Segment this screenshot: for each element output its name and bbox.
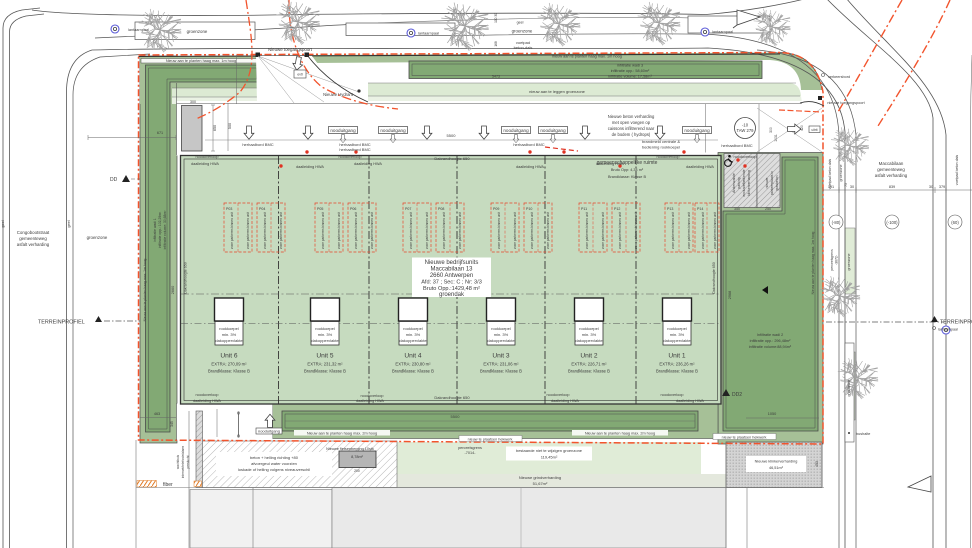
svg-text:Dakrandhoogte 650: Dakrandhoogte 650 xyxy=(712,262,716,294)
svg-text:Brandklasse: Klasse B: Brandklasse: Klasse B xyxy=(568,369,610,374)
svg-text:min. 3%: min. 3% xyxy=(222,332,237,337)
svg-text:350: 350 xyxy=(734,207,740,211)
svg-text:nooduitgang: nooduitgang xyxy=(503,128,529,133)
svg-text:-10: -10 xyxy=(742,123,749,128)
svg-text:Nieuw aan te planten haag max.: Nieuw aan te planten haag max. 1m hoog xyxy=(811,232,815,295)
svg-text:8,78m²: 8,78m² xyxy=(351,455,364,459)
svg-text:P13: P13 xyxy=(667,207,673,211)
svg-text:evtl: evtl xyxy=(297,73,303,77)
svg-text:daalleiding HWA: daalleiding HWA xyxy=(686,165,714,169)
svg-text:Brandklasse: Klasse B: Brandklasse: Klasse B xyxy=(304,369,346,374)
svg-text:51,67m²: 51,67m² xyxy=(533,481,548,486)
svg-text:zone parkeren binnen unit: zone parkeren binnen unit xyxy=(618,212,622,249)
svg-text:Brandklasse: Klasse B: Brandklasse: Klasse B xyxy=(656,369,698,374)
svg-text:zone parkeren binnen unit: zone parkeren binnen unit xyxy=(546,212,550,249)
svg-text:75: 75 xyxy=(844,183,848,187)
svg-text:EXTRA: 270,09 m²: EXTRA: 270,09 m² xyxy=(211,362,247,367)
svg-text:gemeenschappelijke ruimte: gemeenschappelijke ruimte xyxy=(597,160,658,166)
svg-text:nooduitgang: nooduitgang xyxy=(258,429,280,434)
svg-text:Nieuwe grindverharding: Nieuwe grindverharding xyxy=(519,475,561,480)
svg-text:Nieuwe beton verharding: Nieuwe beton verharding xyxy=(608,114,655,119)
svg-text:daalleiding HWA: daalleiding HWA xyxy=(296,165,324,169)
svg-text:Maccabilaan: Maccabilaan xyxy=(879,161,904,166)
svg-text:nieuw aan te planten haag max.: nieuw aan te planten haag max. 1m hoog xyxy=(552,55,622,59)
svg-text:Andersvalide: Andersvalide xyxy=(732,173,736,193)
svg-text:geel: geel xyxy=(67,220,71,227)
svg-text:DD2: DD2 xyxy=(732,392,742,398)
svg-text:wachtbuis: wachtbuis xyxy=(176,455,180,470)
svg-text:Nieuwe Hydrant: Nieuwe Hydrant xyxy=(323,92,354,97)
svg-text:zone parkeren binnen unit: zone parkeren binnen unit xyxy=(279,212,283,249)
svg-text:DD: DD xyxy=(110,177,118,183)
svg-text:Congobootstraat: Congobootstraat xyxy=(17,230,50,235)
svg-text:Unit 5: Unit 5 xyxy=(316,353,334,360)
svg-text:rookkoepel: rookkoepel xyxy=(219,326,239,331)
svg-text:(-100): (-100) xyxy=(886,220,898,225)
svg-text:Nieuw aan te planten haag max.: Nieuw aan te planten haag max. 2m hoog xyxy=(307,431,377,435)
svg-text:-3672-: -3672- xyxy=(835,255,839,265)
svg-text:-7014-: -7014- xyxy=(465,451,477,455)
svg-text:P05: P05 xyxy=(317,207,323,211)
svg-text:groendak: groendak xyxy=(439,292,465,298)
svg-text:300: 300 xyxy=(769,127,773,133)
svg-text:min. 3%: min. 3% xyxy=(406,332,421,337)
svg-text:(-80): (-80) xyxy=(832,220,841,225)
svg-text:asfalt verharding: asfalt verharding xyxy=(875,173,908,178)
svg-text:dakoppervlakte: dakoppervlakte xyxy=(399,338,427,343)
svg-text:noodoverloop: noodoverloop xyxy=(195,393,218,397)
svg-text:noodoverloop: noodoverloop xyxy=(656,155,679,159)
svg-text:fiber: fiber xyxy=(163,482,173,488)
svg-text:daalleiding HWA: daalleiding HWA xyxy=(193,399,221,403)
svg-text:TERREINPROFIEL: TERREINPROFIEL xyxy=(38,320,85,326)
svg-text:grasbeton: grasbeton xyxy=(775,175,779,190)
svg-text:463: 463 xyxy=(154,412,160,416)
svg-text:caissons infiltrerend naar: caissons infiltrerend naar xyxy=(608,126,655,131)
svg-text:daalleiding HWA: daalleiding HWA xyxy=(676,399,704,403)
svg-text:5500: 5500 xyxy=(451,414,461,419)
svg-text:lantaarnpaal: lantaarnpaal xyxy=(938,328,958,332)
svg-text:30: 30 xyxy=(929,185,933,189)
svg-text:500: 500 xyxy=(228,123,232,129)
svg-text:lantaarnpaal: lantaarnpaal xyxy=(418,32,439,36)
svg-text:zone parkeren binnen unit: zone parkeren binnen unit xyxy=(634,212,638,249)
svg-text:zone parkeren binnen unit: zone parkeren binnen unit xyxy=(321,212,325,249)
svg-text:2660 Antwerpen: 2660 Antwerpen xyxy=(430,273,473,279)
svg-text:EXTRA: 231,32 m²: EXTRA: 231,32 m² xyxy=(307,362,343,367)
svg-text:Unit 1: Unit 1 xyxy=(668,353,686,360)
svg-text:379: 379 xyxy=(939,185,945,189)
svg-text:zone parkeren binnen unit: zone parkeren binnen unit xyxy=(370,212,374,249)
svg-text:P06: P06 xyxy=(350,207,356,211)
svg-text:brandmeld centrale &: brandmeld centrale & xyxy=(642,139,680,144)
svg-text:Dakrandhoogte 650: Dakrandhoogte 650 xyxy=(434,395,470,400)
svg-text:TERREINPROFIEL: TERREINPROFIEL xyxy=(940,320,972,326)
svg-text:herhaalbord BMC: herhaalbord BMC xyxy=(721,143,752,148)
svg-text:daalleiding HWA: daalleiding HWA xyxy=(354,162,382,166)
svg-text:2660: 2660 xyxy=(171,286,175,294)
svg-text:Unit 3: Unit 3 xyxy=(492,353,510,360)
svg-text:klinkerverharding: klinkerverharding xyxy=(747,170,751,196)
svg-text:noodoverloop: noodoverloop xyxy=(195,155,218,159)
svg-text:nooduitgang: nooduitgang xyxy=(540,128,566,133)
svg-text:Afd: 37 ; Sec: C ; Nr: 3/3: Afd: 37 ; Sec: C ; Nr: 3/3 xyxy=(421,280,482,286)
svg-text:bestaande niet te wijzigen gro: bestaande niet te wijzigen groenzone xyxy=(516,448,583,453)
svg-text:geel: geel xyxy=(1,220,5,227)
svg-text:beton-dals: beton-dals xyxy=(514,45,533,50)
svg-text:nieuwe toegangspoort: nieuwe toegangspoort xyxy=(827,101,865,105)
svg-text:nieuw te plaatsen hekwerk: nieuw te plaatsen hekwerk xyxy=(722,435,767,439)
svg-text:perceelsgrens: perceelsgrens xyxy=(458,446,482,450)
svg-text:Unit 6: Unit 6 xyxy=(220,353,238,360)
svg-text:min. 3%: min. 3% xyxy=(670,332,685,337)
svg-text:zone parkeren binnen unit: zone parkeren binnen unit xyxy=(671,212,675,249)
svg-text:min. 3%: min. 3% xyxy=(318,332,333,337)
svg-text:infiltratie opp.: 296,48m²: infiltratie opp.: 296,48m² xyxy=(750,339,791,343)
svg-text:herhaalbord BMC: herhaalbord BMC xyxy=(242,142,273,147)
svg-text:zone parkeren binnen unit: zone parkeren binnen unit xyxy=(230,212,234,249)
svg-text:Infiltratie wadi 2: Infiltratie wadi 2 xyxy=(757,333,783,337)
svg-text:119,45m²: 119,45m² xyxy=(541,455,558,460)
svg-text:46,51m²: 46,51m² xyxy=(769,466,784,470)
svg-text:Nieuwe toegangspoort: Nieuwe toegangspoort xyxy=(268,47,313,52)
svg-text:P12: P12 xyxy=(614,207,620,211)
svg-text:zone parkeren binnen unit: zone parkeren binnen unit xyxy=(601,212,605,249)
svg-text:100 30: 100 30 xyxy=(494,13,498,23)
svg-text:daalleiding HWA: daalleiding HWA xyxy=(356,399,384,403)
svg-text:dakoppervlakte: dakoppervlakte xyxy=(487,338,515,343)
svg-text:nieuw te plaatsen hekwerk: nieuw te plaatsen hekwerk xyxy=(468,437,513,441)
svg-text:verkeersbord: verkeersbord xyxy=(828,75,850,79)
svg-text:voetpad beton dals: voetpad beton dals xyxy=(955,155,959,186)
svg-text:Dakrandhoogte 650: Dakrandhoogte 650 xyxy=(434,156,470,161)
svg-text:infiltratie wadi 1: infiltratie wadi 1 xyxy=(153,218,157,241)
svg-text:5473: 5473 xyxy=(492,75,500,79)
svg-text:EXTRA: 236,26 m²: EXTRA: 236,26 m² xyxy=(659,362,695,367)
svg-text:rookkoepel: rookkoepel xyxy=(667,326,687,331)
svg-text:200: 200 xyxy=(354,469,360,473)
svg-text:300: 300 xyxy=(190,100,196,104)
svg-text:Dakrandhoogte 650: Dakrandhoogte 650 xyxy=(184,262,188,294)
svg-text:Brandklasse: Klasse B: Brandklasse: Klasse B xyxy=(208,369,250,374)
svg-text:EXTRA: 231,06 m²: EXTRA: 231,06 m² xyxy=(483,362,519,367)
svg-text:min. 3%: min. 3% xyxy=(494,332,509,337)
svg-text:EXTRA: 230,80 m²: EXTRA: 230,80 m² xyxy=(395,362,431,367)
svg-text:zone parkeren binnen unit: zone parkeren binnen unit xyxy=(354,212,358,249)
svg-text:zone parkeren binnen unit: zone parkeren binnen unit xyxy=(585,212,589,249)
svg-text:nooduitgang: nooduitgang xyxy=(380,128,406,133)
svg-text:lantaarnpaal: lantaarnpaal xyxy=(128,28,149,32)
svg-text:groenzone: groenzone xyxy=(847,380,851,397)
svg-text:Unit 4: Unit 4 xyxy=(404,353,422,360)
svg-text:P04: P04 xyxy=(259,207,265,211)
svg-text:daalleiding HWA: daalleiding HWA xyxy=(551,399,579,403)
svg-text:nieuwe: nieuwe xyxy=(765,178,769,189)
svg-text:herhaalbord BMC: herhaalbord BMC xyxy=(513,142,544,147)
svg-text:zone parkeren binnen unit: zone parkeren binnen unit xyxy=(513,212,517,249)
svg-text:Nieuw aan te planten haag max.: Nieuw aan te planten haag max. 1m hoog xyxy=(166,59,236,63)
svg-text:parking: parking xyxy=(737,177,741,188)
svg-text:internet/telefonie/alarm: internet/telefonie/alarm xyxy=(181,445,185,478)
svg-text:geel: geel xyxy=(517,21,524,25)
svg-text:zone parkeren binnen unit: zone parkeren binnen unit xyxy=(530,212,534,249)
svg-text:groenzone: groenzone xyxy=(847,254,851,271)
svg-text:dakoppervlakte: dakoppervlakte xyxy=(575,338,603,343)
svg-text:daalleiding HWA: daalleiding HWA xyxy=(516,165,544,169)
svg-text:daalleiding HWA: daalleiding HWA xyxy=(191,162,219,166)
svg-text:bediening rookkoepel: bediening rookkoepel xyxy=(642,145,680,150)
svg-text:infiltratie volume: 17,58m³: infiltratie volume: 17,58m³ xyxy=(608,75,652,79)
svg-text:Nieuw aan te planten haag max.: Nieuw aan te planten haag max. 1m hoog xyxy=(143,259,147,322)
svg-text:dakoppervlakte: dakoppervlakte xyxy=(215,338,243,343)
svg-text:de bodem ( hydrops): de bodem ( hydrops) xyxy=(612,132,651,137)
svg-text:zone parkeren binnen unit: zone parkeren binnen unit xyxy=(687,212,691,249)
svg-text:groenzone: groenzone xyxy=(87,235,108,240)
svg-text:zone parkeren binnen unit: zone parkeren binnen unit xyxy=(425,212,429,249)
svg-text:loskade of helling volgens niv: loskade of helling volgens niveauverschi… xyxy=(238,467,310,472)
svg-text:noodoverloop: noodoverloop xyxy=(338,155,361,159)
svg-text:infiltratie wadi 3: infiltratie wadi 3 xyxy=(617,64,643,68)
svg-text:TAW 279: TAW 279 xyxy=(737,128,755,133)
svg-text:gemeenteweg: gemeenteweg xyxy=(19,236,47,241)
svg-text:Brandklasse: Klasse B: Brandklasse: Klasse B xyxy=(608,175,646,179)
svg-text:beton + helling richting +80: beton + helling richting +80 xyxy=(250,455,299,460)
svg-text:rookkoepel: rookkoepel xyxy=(315,326,335,331)
svg-text:nooduitgang: nooduitgang xyxy=(330,128,356,133)
svg-text:(60): (60) xyxy=(951,220,959,225)
svg-text:zone parkeren binnen unit: zone parkeren binnen unit xyxy=(263,212,267,249)
svg-text:infiltratie volume:88,94m³: infiltratie volume:88,94m³ xyxy=(749,345,792,349)
svg-text:345: 345 xyxy=(170,421,174,427)
svg-text:168: 168 xyxy=(494,41,498,47)
svg-text:839: 839 xyxy=(889,185,895,189)
svg-text:zone parkeren binnen unit: zone parkeren binnen unit xyxy=(701,212,705,249)
svg-text:671: 671 xyxy=(157,131,163,135)
svg-text:P07: P07 xyxy=(405,207,411,211)
svg-text:zone parkeren binnen unit: zone parkeren binnen unit xyxy=(442,212,446,249)
svg-text:Bruto Opp: 4,34 m²: Bruto Opp: 4,34 m² xyxy=(611,168,644,172)
svg-text:250: 250 xyxy=(765,207,771,211)
svg-text:noodoverloop: noodoverloop xyxy=(733,155,756,159)
svg-text:noodoverloop: noodoverloop xyxy=(546,393,569,397)
svg-text:noodoverloop: noodoverloop xyxy=(660,393,683,397)
svg-text:420: 420 xyxy=(800,125,804,131)
svg-text:exclusiefbediende: exclusiefbediende xyxy=(742,169,746,196)
svg-text:groenzone: groenzone xyxy=(512,29,533,34)
svg-text:infiltratie opp.: 58,60m²: infiltratie opp.: 58,60m² xyxy=(611,69,650,73)
svg-text:zone parkeren binnen unit: zone parkeren binnen unit xyxy=(713,212,717,249)
svg-text:afvoergeul water voorzien: afvoergeul water voorzien xyxy=(251,461,297,466)
svg-text:30: 30 xyxy=(850,185,854,189)
svg-text:herhaalbord BMC: herhaalbord BMC xyxy=(339,147,370,152)
svg-text:noodoverloop: noodoverloop xyxy=(360,394,383,398)
svg-text:P10: P10 xyxy=(526,207,532,211)
svg-text:dakoppervlakte: dakoppervlakte xyxy=(311,338,339,343)
svg-text:nooduitgang: nooduitgang xyxy=(684,128,710,133)
svg-text:EXTRA: 226,71 m²: EXTRA: 226,71 m² xyxy=(571,362,607,367)
svg-text:5500: 5500 xyxy=(447,133,457,138)
svg-text:min. 3%: min. 3% xyxy=(582,332,597,337)
svg-text:P03: P03 xyxy=(226,207,232,211)
svg-text:Unit 2: Unit 2 xyxy=(580,353,598,360)
svg-text:Nieuwe klinkerverharding: Nieuwe klinkerverharding xyxy=(755,460,798,464)
svg-text:dakoppervlakte: dakoppervlakte xyxy=(663,338,691,343)
svg-text:zone parkeren binnen unit: zone parkeren binnen unit xyxy=(246,212,250,249)
svg-text:1031: 1031 xyxy=(774,134,778,142)
svg-text:infiltratie volume: 30,68m³: infiltratie volume: 30,68m³ xyxy=(163,210,167,250)
svg-text:P09: P09 xyxy=(493,207,499,211)
svg-text:infiltratie opp.: 102,29m²: infiltratie opp.: 102,29m² xyxy=(158,211,162,248)
svg-text:Brandklasse: Klasse B: Brandklasse: Klasse B xyxy=(392,369,434,374)
svg-text:nieuw aan te leggen groenzone: nieuw aan te leggen groenzone xyxy=(529,89,586,94)
svg-text:Maccabilaan 13: Maccabilaan 13 xyxy=(430,267,473,273)
svg-text:perslucht: perslucht xyxy=(186,455,190,468)
svg-text:Nieuw aan te planten haag max.: Nieuw aan te planten haag max. 2m hoog xyxy=(585,431,655,435)
svg-text:P14: P14 xyxy=(697,207,703,211)
svg-text:rookkoepel: rookkoepel xyxy=(403,326,423,331)
svg-text:bushalte: bushalte xyxy=(856,432,870,436)
svg-text:gemeenteweg: gemeenteweg xyxy=(877,167,905,172)
svg-text:zone parkeren binnen unit: zone parkeren binnen unit xyxy=(497,212,501,249)
svg-text:P11: P11 xyxy=(581,207,587,211)
svg-text:1050: 1050 xyxy=(768,412,776,416)
svg-text:groenzone: groenzone xyxy=(839,165,843,182)
svg-text:perceelsgrens: perceelsgrens xyxy=(830,249,834,271)
svg-text:rookkoepel: rookkoepel xyxy=(579,326,599,331)
svg-text:parkeerplaats in: parkeerplaats in xyxy=(770,171,774,195)
svg-text:zone parkeren binnen unit: zone parkeren binnen unit xyxy=(409,212,413,249)
svg-text:asfalt verharding: asfalt verharding xyxy=(17,242,50,247)
svg-text:650: 650 xyxy=(213,125,217,131)
svg-text:rookkoepel: rookkoepel xyxy=(491,326,511,331)
svg-text:Nieuwe bedrijfsunits: Nieuwe bedrijfsunits xyxy=(425,260,479,266)
svg-text:P08: P08 xyxy=(438,207,444,211)
svg-text:zone parkeren binnen unit: zone parkeren binnen unit xyxy=(458,212,462,249)
svg-text:lantaarnpaal: lantaarnpaal xyxy=(712,30,733,34)
svg-text:zone parkeren binnen unit: zone parkeren binnen unit xyxy=(337,212,341,249)
svg-text:uitrit: uitrit xyxy=(811,128,817,132)
svg-text:met open voegen op: met open voegen op xyxy=(612,120,651,125)
svg-text:groenzone: groenzone xyxy=(187,29,208,34)
svg-text:453: 453 xyxy=(815,461,819,467)
svg-text:Brandklasse: Klasse B: Brandklasse: Klasse B xyxy=(480,369,522,374)
svg-text:2968: 2968 xyxy=(728,291,732,299)
svg-text:Nieuwe fietsenberging 10stk: Nieuwe fietsenberging 10stk xyxy=(326,447,374,451)
svg-text:191: 191 xyxy=(828,185,834,189)
